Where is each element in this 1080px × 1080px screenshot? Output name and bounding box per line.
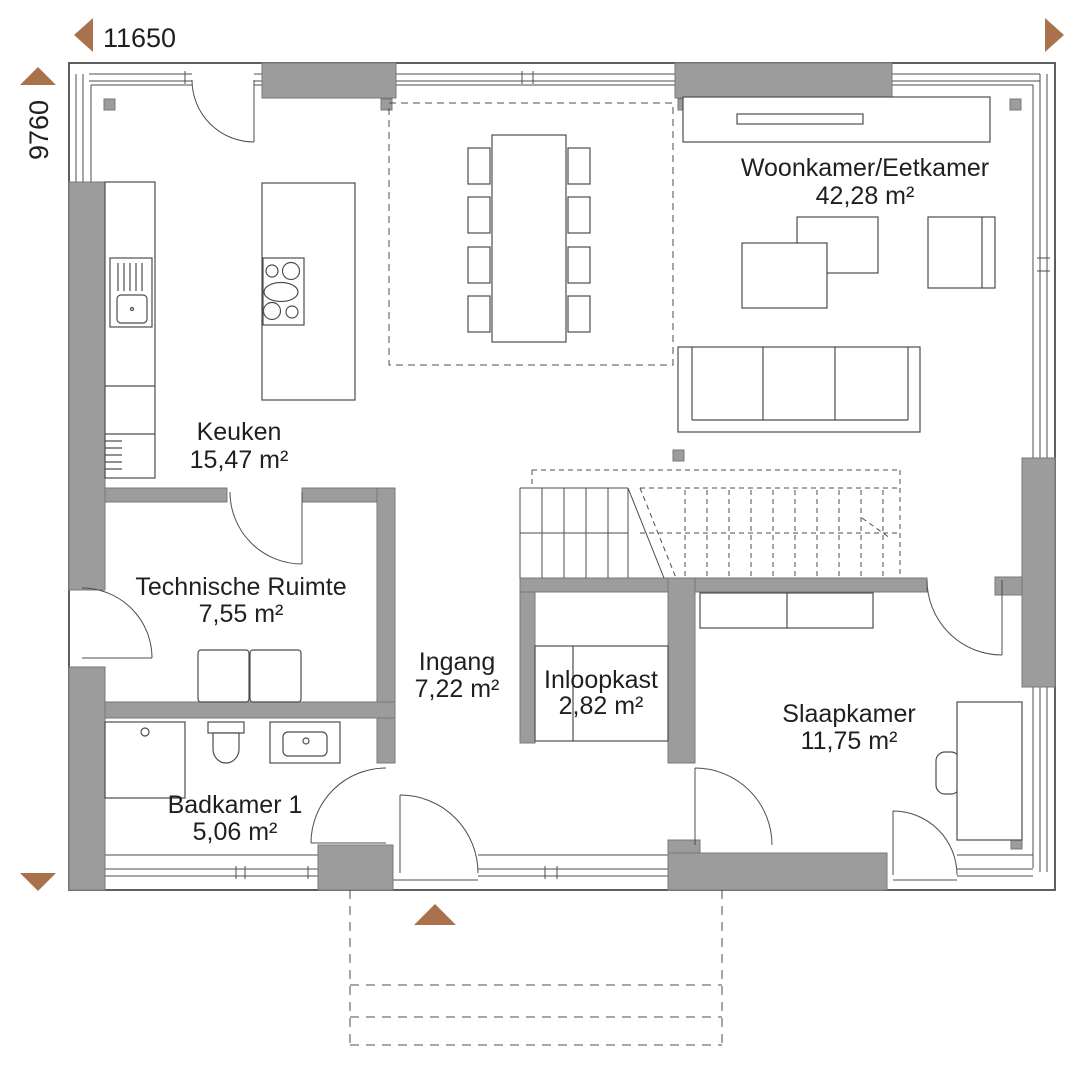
dining-chair [568, 247, 590, 283]
living-furniture [678, 97, 995, 432]
room-area-inloopkast: 2,82 m² [559, 692, 644, 720]
wall-hall-vertical [377, 488, 395, 763]
dining-table [492, 135, 566, 342]
dining-chair [568, 296, 590, 332]
dining-furniture [468, 135, 590, 342]
column [381, 99, 392, 110]
wall-bottom-a [318, 845, 393, 890]
sideboard [683, 97, 990, 142]
shower [105, 722, 185, 798]
dining-chair [468, 247, 490, 283]
washing-machine [250, 650, 301, 702]
wall-closet-left [520, 592, 535, 743]
dining-chair [468, 296, 490, 332]
washing-machine [198, 650, 249, 702]
desk [957, 702, 1022, 840]
wall-left-upper [69, 182, 105, 590]
wall-tech-bath [105, 702, 395, 718]
garden-door [893, 811, 957, 875]
bedroom-door-hall [695, 768, 772, 845]
porch-outline [350, 890, 722, 1045]
dining-chair [568, 197, 590, 233]
wall-top-b [675, 63, 892, 98]
room-area-technische-ruimte: 7,55 m² [199, 600, 284, 628]
coffee-table [742, 243, 827, 308]
dining-chair [568, 148, 590, 184]
room-label-inloopkast: Inloopkast [544, 666, 658, 694]
bathroom-door [311, 768, 386, 843]
armchair [928, 217, 995, 288]
wall-right-block [1022, 458, 1055, 687]
wall-kitchen-tech-left [105, 488, 227, 502]
wall-right-stub [995, 577, 1022, 595]
room-label-woonkamer: Woonkamer/Eetkamer [741, 154, 989, 182]
vanity [270, 722, 340, 763]
column [104, 99, 115, 110]
dim-height-label: 9760 [24, 100, 54, 160]
room-label-slaapkamer: Slaapkamer [782, 700, 915, 728]
wall-top-a [262, 63, 396, 98]
entrance-arrow-icon [414, 904, 456, 925]
dim-arrow-right-icon [1045, 18, 1064, 52]
dim-arrow-up-icon [20, 67, 56, 85]
toilet-bowl [213, 733, 239, 763]
room-label-technische-ruimte: Technische Ruimte [135, 573, 346, 601]
stair-upper-outline [532, 470, 900, 578]
column [673, 450, 684, 461]
room-label-badkamer: Badkamer 1 [168, 791, 303, 819]
dim-arrow-down-icon [20, 873, 56, 891]
dim-arrow-left-icon [74, 18, 93, 52]
wall-under-stairs [520, 578, 927, 592]
column [1010, 99, 1021, 110]
kitchen-island [262, 183, 355, 400]
room-area-ingang: 7,22 m² [415, 675, 500, 703]
stair-direction-tick [862, 518, 890, 538]
room-label-keuken: Keuken [197, 418, 282, 446]
room-area-woonkamer: 42,28 m² [816, 182, 915, 210]
room-area-keuken: 15,47 m² [190, 446, 289, 474]
kitchen-window-door [192, 80, 254, 142]
tech-room-door [230, 492, 302, 564]
tech-furniture [198, 650, 301, 702]
wall-closet-right [668, 578, 695, 763]
dining-chair [468, 197, 490, 233]
room-label-ingang: Ingang [419, 648, 495, 676]
room-area-badkamer: 5,06 m² [193, 818, 278, 846]
window-left [76, 74, 83, 182]
dining-chair [468, 148, 490, 184]
toilet-cistern [208, 722, 244, 733]
dim-width-label: 11650 [103, 23, 176, 53]
front-door [400, 795, 478, 873]
sofa [678, 347, 920, 432]
room-area-slaapkamer: 11,75 m² [801, 727, 898, 755]
bathroom-furniture [105, 722, 340, 798]
bedroom-door-north [927, 580, 1002, 655]
staircase [520, 470, 900, 578]
window-bottom [105, 869, 1033, 880]
window-top [89, 74, 1040, 81]
wall-bottom-b [668, 853, 887, 890]
wall-left-lower [69, 667, 105, 890]
floor-plan-page: Woonkamer/Eetkamer 42,28 m² Keuken 15,47… [0, 0, 1080, 1080]
floor-plan-canvas: Woonkamer/Eetkamer 42,28 m² Keuken 15,47… [0, 0, 1080, 1080]
